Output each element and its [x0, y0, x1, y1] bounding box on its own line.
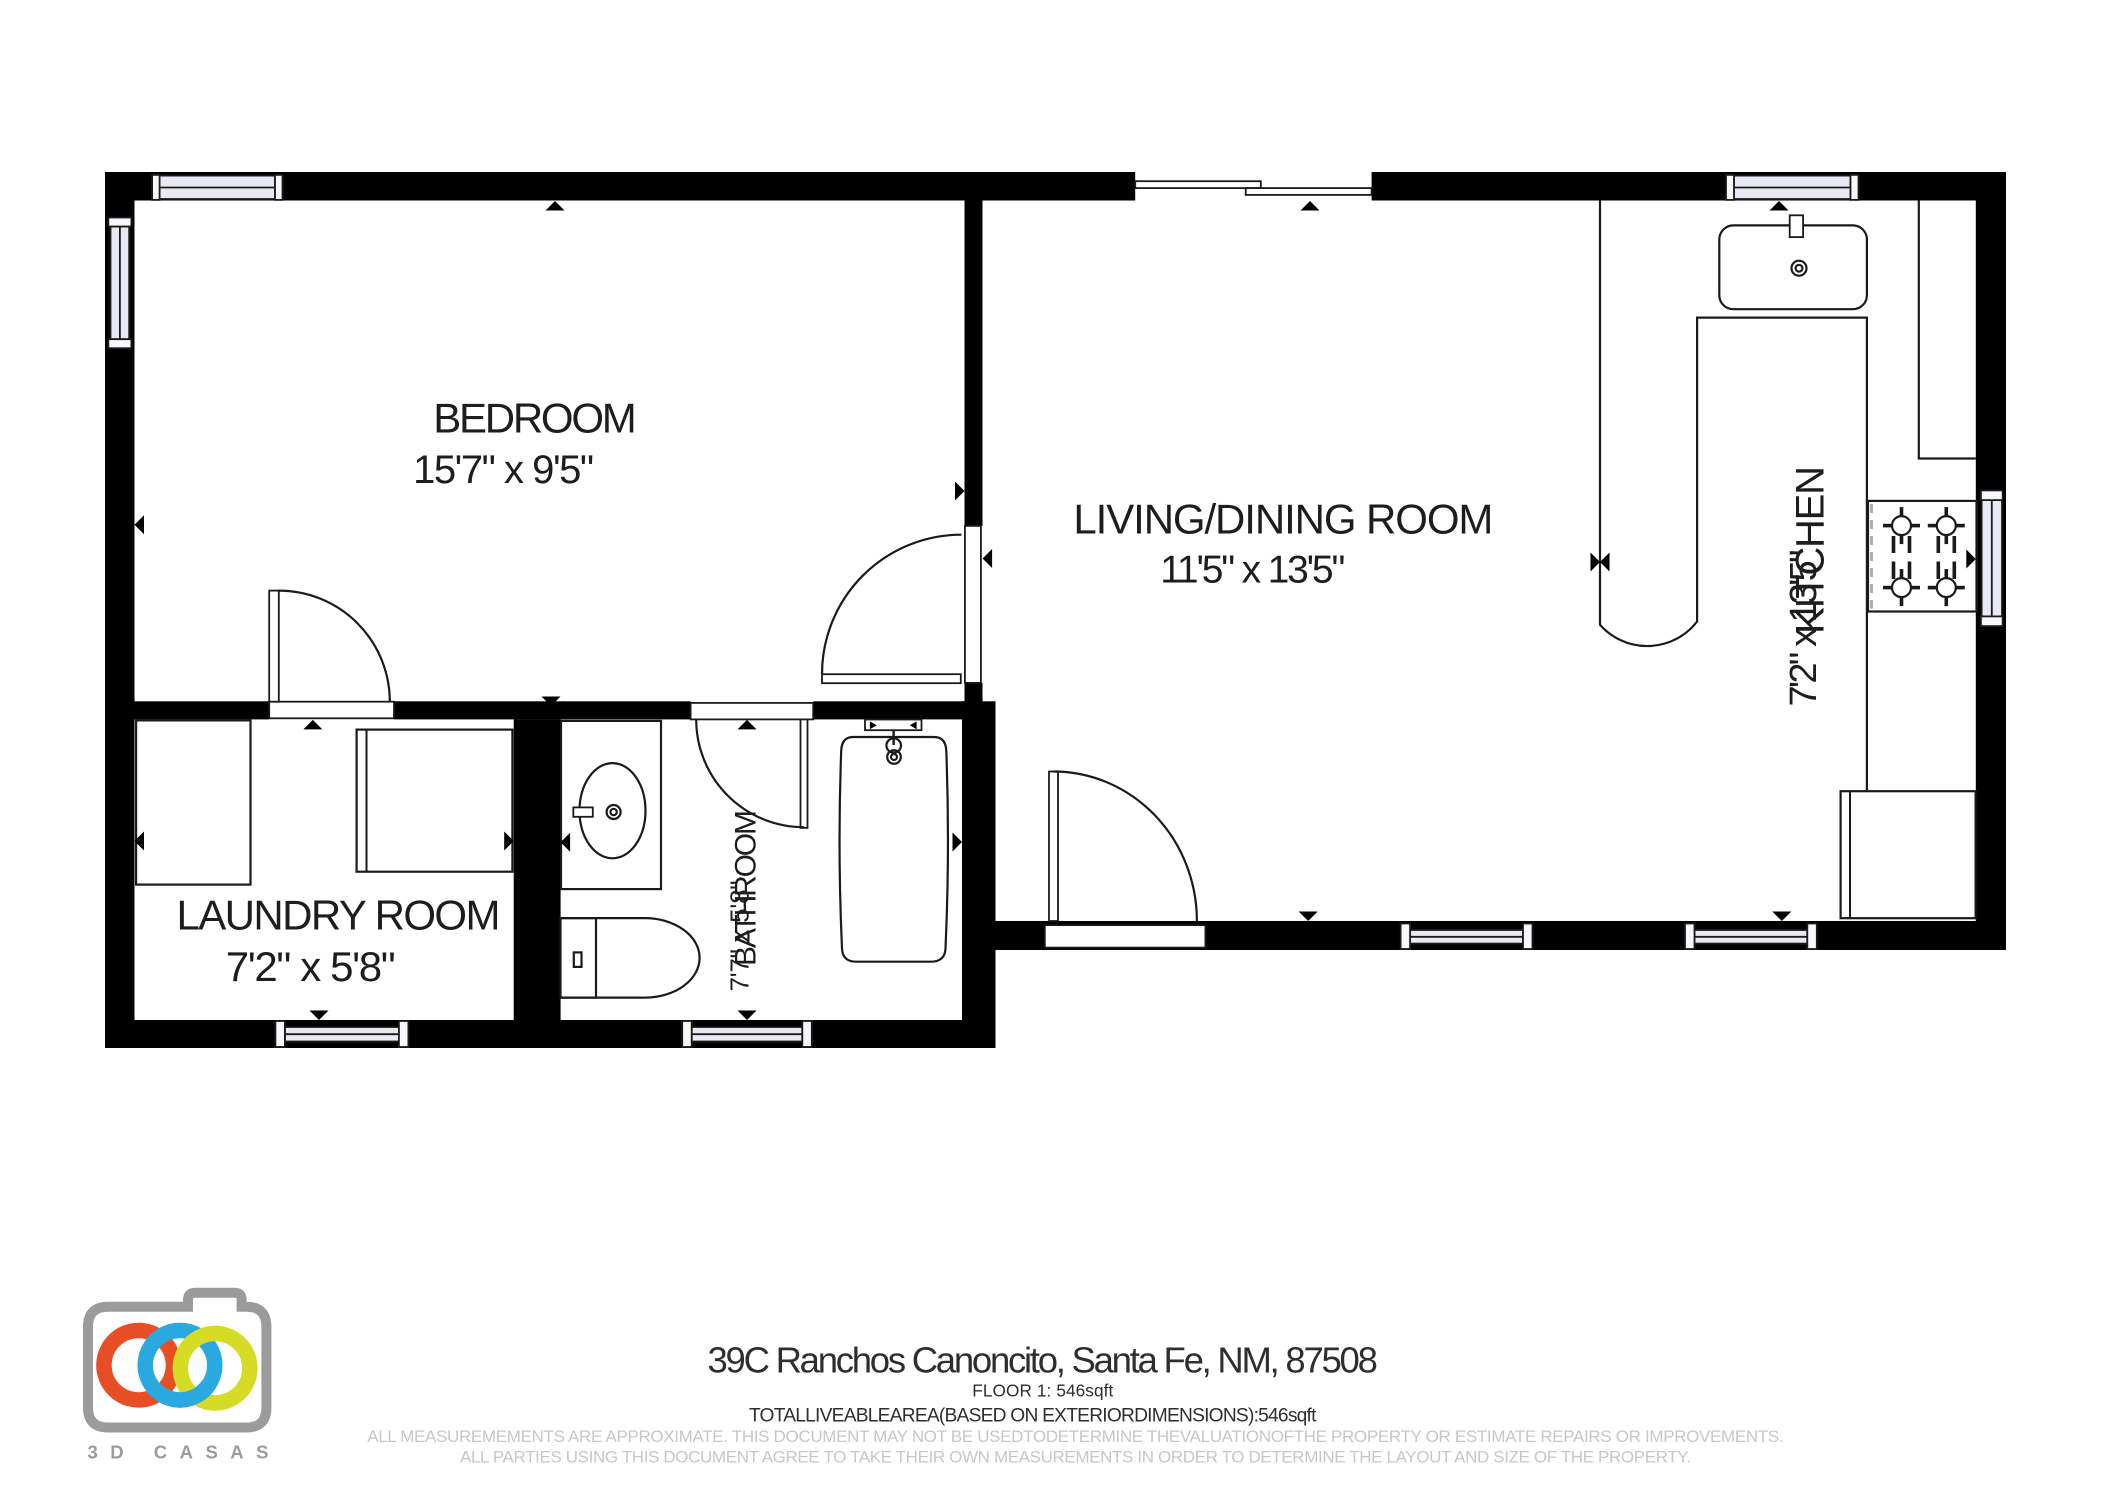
svg-text:7'2" x 13'5": 7'2" x 13'5"	[1783, 550, 1825, 707]
svg-text:ALL MEASUREMEMENTS ARE APPROXI: ALL MEASUREMEMENTS ARE APPROXIMATE. THIS…	[367, 1427, 1783, 1446]
svg-text:11'5" x 13'5": 11'5" x 13'5"	[1160, 549, 1345, 592]
svg-text:39C Ranchos Canoncito, Santa F: 39C Ranchos Canoncito, Santa Fe, NM, 875…	[708, 1340, 1378, 1381]
svg-text:TOTALLIVEABLEAREA(BASED ON EXT: TOTALLIVEABLEAREA(BASED ON EXTERIORDIMEN…	[749, 1405, 1317, 1426]
svg-text:ALL PARTIES USING THIS DOCUMEN: ALL PARTIES USING THIS DOCUMENT AGREE TO…	[460, 1447, 1691, 1466]
svg-text:LAUNDRY ROOM: LAUNDRY ROOM	[177, 892, 501, 939]
svg-text:FLOOR 1: 546sqft: FLOOR 1: 546sqft	[972, 1381, 1113, 1401]
svg-text:15'7" x 9'5": 15'7" x 9'5"	[413, 448, 594, 492]
svg-text:7'7" x 5'8": 7'7" x 5'8"	[725, 881, 755, 992]
svg-text:BEDROOM: BEDROOM	[433, 395, 637, 442]
svg-text:LIVING/DINING ROOM: LIVING/DINING ROOM	[1073, 496, 1493, 543]
svg-text:7'2" x 5'8": 7'2" x 5'8"	[226, 943, 396, 990]
